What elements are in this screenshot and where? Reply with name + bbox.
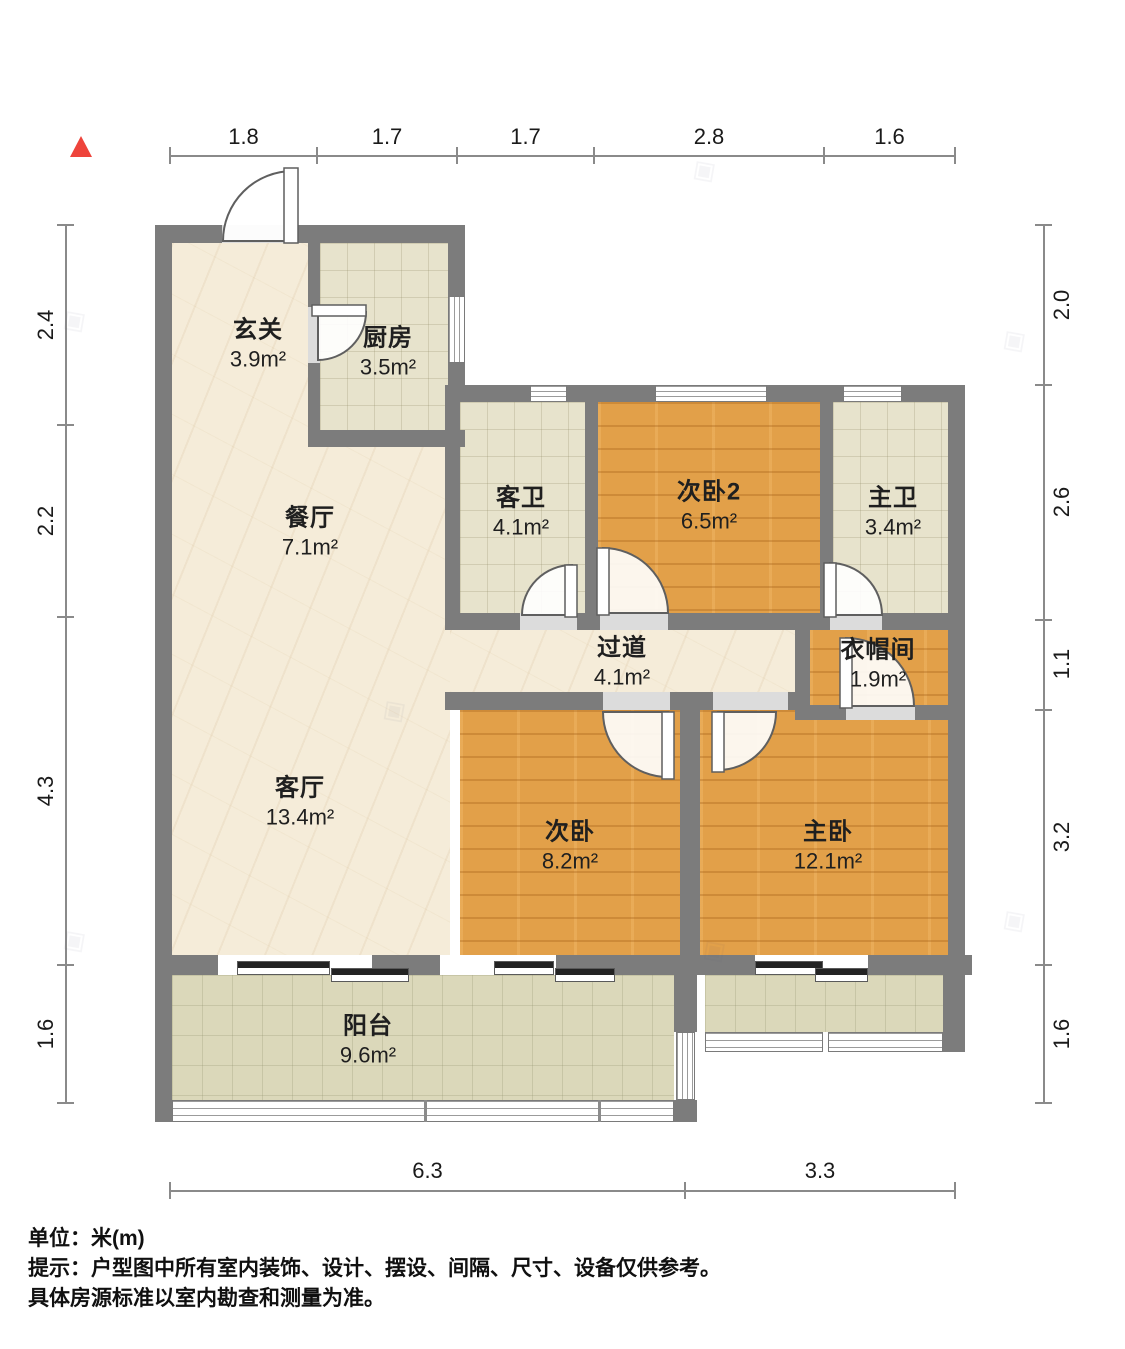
door-arc-bedroom <box>603 712 668 777</box>
unit-note: 单位：米(m) <box>28 1222 145 1252</box>
room-label-master-bath: 主卫3.4m² <box>865 483 921 541</box>
room-label-guest-bath: 客卫4.1m² <box>493 483 549 541</box>
dim-label: 3.2 <box>1049 822 1075 853</box>
door-arc-master-bath <box>830 563 882 615</box>
dim-label: 2.8 <box>594 124 824 150</box>
dim-label: 2.2 <box>33 506 59 537</box>
door-arc-master-bed <box>718 712 776 770</box>
room-label-bedroom: 次卧8.2m² <box>542 817 598 875</box>
dim-label: 1.6 <box>33 1019 59 1050</box>
door-leaf-bedroom <box>662 712 674 779</box>
door-arc-entry <box>223 171 293 241</box>
door-arc-kitchen <box>318 312 366 360</box>
dim-label: 6.3 <box>170 1158 685 1184</box>
door-leaf-bedroom2 <box>597 548 609 615</box>
room-label-kitchen: 厨房3.5m² <box>360 323 416 381</box>
dim-label: 1.6 <box>824 124 955 150</box>
room-label-dining: 餐厅7.1m² <box>282 503 338 561</box>
room-label-master-bed: 主卧12.1m² <box>794 817 862 875</box>
dim-label: 1.1 <box>1049 649 1075 680</box>
door-leaf-master-bath <box>824 563 836 617</box>
doors-layer <box>0 0 1125 1349</box>
dim-label: 1.8 <box>170 124 317 150</box>
door-leaf-kitchen <box>312 305 366 316</box>
door-arc-bedroom2 <box>603 548 668 613</box>
room-label-hallway: 过道4.1m² <box>594 633 650 691</box>
tip-line2: 具体房源标准以室内勘查和测量为准。 <box>28 1282 385 1312</box>
room-label-living: 客厅13.4m² <box>266 773 334 831</box>
dim-label: 1.7 <box>457 124 594 150</box>
dim-label: 1.6 <box>1049 1019 1075 1050</box>
dim-label: 2.0 <box>1049 290 1075 321</box>
dim-label: 2.6 <box>1049 487 1075 518</box>
dim-label: 4.3 <box>33 776 59 807</box>
dim-label: 3.3 <box>685 1158 955 1184</box>
room-label-balcony: 阳台9.6m² <box>340 1011 396 1069</box>
room-label-bedroom2: 次卧26.5m² <box>677 477 741 535</box>
door-leaf-entry <box>284 168 298 243</box>
tip-line1: 提示：户型图中所有室内装饰、设计、摆设、间隔、尺寸、设备仅供参考。 <box>28 1252 721 1282</box>
door-leaf-guest-bath <box>565 565 577 617</box>
dim-label: 2.4 <box>33 310 59 341</box>
door-leaf-master-bed <box>712 712 724 772</box>
room-label-closet: 衣帽间1.9m² <box>841 635 916 693</box>
room-label-entry: 玄关3.9m² <box>230 315 286 373</box>
dim-label: 1.7 <box>317 124 457 150</box>
floor-plan-canvas: 玄关3.9m² 厨房3.5m² 餐厅7.1m² 客卫4.1m² 次卧26.5m²… <box>0 0 1125 1349</box>
